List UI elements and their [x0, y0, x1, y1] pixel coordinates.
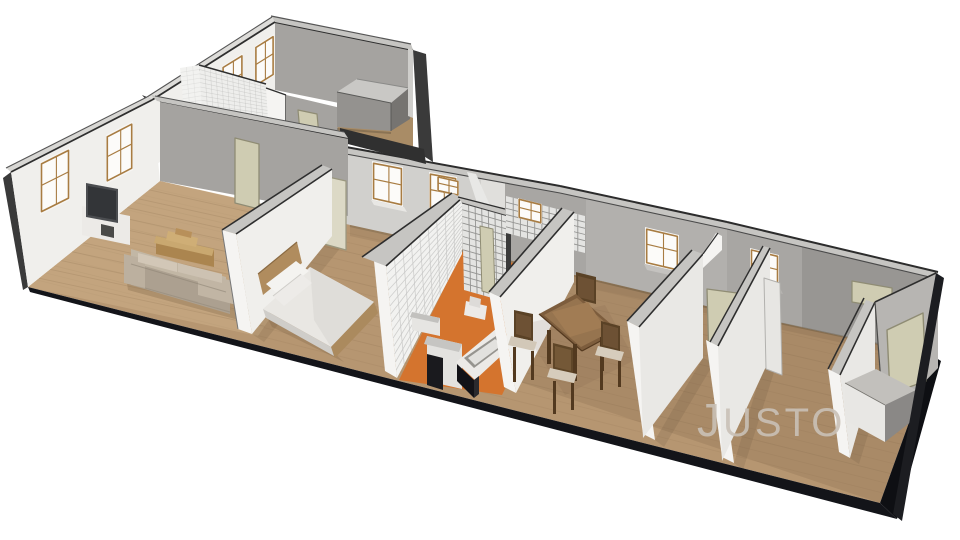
svg-text:JUSTO: JUSTO: [697, 394, 845, 446]
